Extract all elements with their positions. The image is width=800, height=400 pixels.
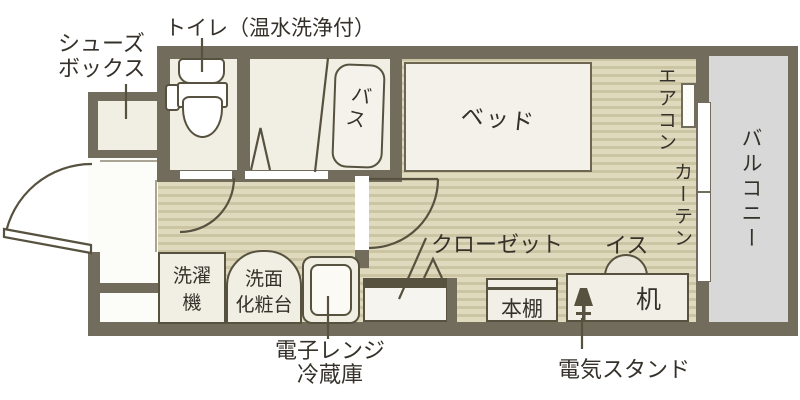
microwave-label-line2: 冷蔵庫 (256, 363, 404, 387)
microwave-label-line1: 電子レンジ (256, 339, 404, 363)
entrance-step-line (100, 160, 158, 162)
closet (363, 278, 448, 322)
shoebox-bottom-wall (88, 150, 160, 158)
microwave-label: 電子レンジ 冷蔵庫 (256, 339, 404, 387)
entrance-door-arc (5, 164, 92, 237)
left-wall-lower (88, 252, 100, 336)
bookshelf: 本棚 (486, 278, 558, 322)
microwave-fridge-inner (310, 264, 352, 316)
vanity-label-1: 洗面 (228, 264, 300, 291)
bookshelf-shelf-line (487, 287, 557, 290)
desk-label: 机 (636, 280, 661, 316)
bed-label: ベッド (459, 96, 537, 138)
closet-label: クローゼット (431, 227, 563, 259)
entrance-hall-boundary (155, 180, 157, 252)
vanity-label-2: 化粧台 (228, 290, 300, 317)
bookshelf-label: 本棚 (488, 293, 556, 323)
bed: ベッド (404, 62, 592, 172)
closet-side-wall (447, 278, 457, 322)
desk: 机 (566, 273, 689, 322)
shoebox-left-wall (88, 92, 98, 158)
balcony-right-wall (788, 46, 798, 336)
bath-door-opening (245, 171, 328, 179)
aircon-label: エアコン (652, 66, 679, 154)
balcony-label: バルコニー (735, 127, 765, 252)
aircon-unit (681, 83, 696, 128)
curtain-label: カーテン (668, 162, 695, 250)
shoebox (98, 101, 157, 150)
vanity: 洗面 化粧台 (226, 250, 302, 324)
washing-machine-label-1: 洗濯 (160, 261, 224, 288)
washing-machine-label-2: 機 (160, 288, 224, 315)
toilet-door-opening (180, 171, 232, 179)
washing-machine: 洗濯 機 (158, 252, 226, 324)
balcony-window-divider (697, 191, 711, 193)
shoebox-top-wall (88, 92, 168, 101)
entrance-door-leaf (4, 229, 91, 253)
mainroom-door-opening (355, 176, 369, 250)
entrance-divider-wall (92, 283, 158, 293)
desk-lamp-label: 電気スタンド (558, 352, 690, 384)
shoebox-label-line2: ボックス (58, 56, 145, 81)
toilet-label: トイレ（温水洗浄付） (165, 12, 375, 42)
shoebox-label-line1: シューズ (58, 31, 145, 56)
shoebox-label: シューズ ボックス (58, 31, 145, 81)
toilet-tank (178, 58, 225, 84)
floor-plan: バス ベッド 机 本棚 洗濯 機 洗面 化粧台 (0, 0, 800, 400)
bottom-wall (88, 322, 798, 336)
chair-label: イス (605, 228, 648, 260)
